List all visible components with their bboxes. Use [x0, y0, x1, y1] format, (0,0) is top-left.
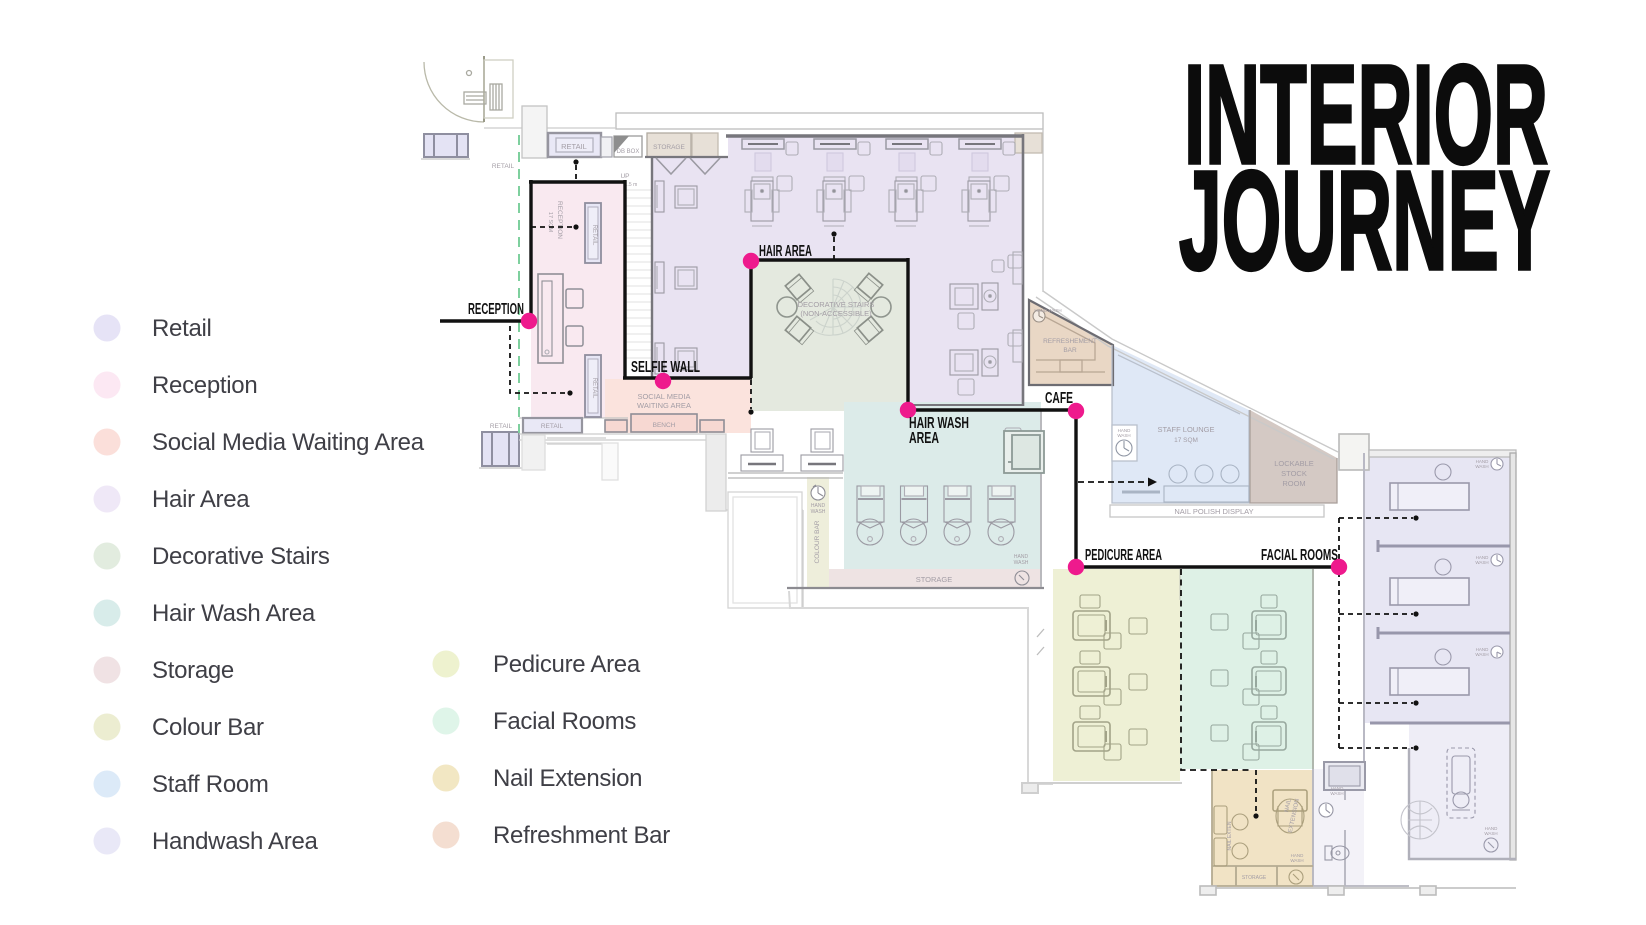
svg-text:Pedicure Area: Pedicure Area: [493, 651, 641, 678]
svg-text:RETAIL: RETAIL: [561, 142, 587, 151]
svg-text:Refreshment Bar: Refreshment Bar: [493, 822, 670, 849]
svg-text:LOCKABLE: LOCKABLE: [1274, 459, 1314, 468]
svg-text:RETAIL: RETAIL: [541, 423, 564, 430]
svg-text:Hair Wash Area: Hair Wash Area: [152, 600, 316, 627]
svg-text:Hair Area: Hair Area: [152, 486, 250, 513]
svg-text:WASH: WASH: [1475, 652, 1488, 657]
svg-text:Reception: Reception: [152, 372, 257, 399]
svg-text:WASH: WASH: [1475, 464, 1488, 469]
svg-text:WASH: WASH: [811, 509, 826, 515]
svg-text:WASH: WASH: [1330, 791, 1343, 796]
svg-text:Retail: Retail: [152, 315, 212, 342]
svg-text:Facial Rooms: Facial Rooms: [493, 708, 636, 735]
svg-text:WAITING AREA: WAITING AREA: [637, 401, 691, 410]
svg-text:STORAGE: STORAGE: [653, 144, 685, 151]
svg-text:Staff Room: Staff Room: [152, 771, 269, 798]
svg-text:STORAGE: STORAGE: [916, 575, 953, 584]
svg-text:Nail Extension: Nail Extension: [493, 765, 642, 792]
svg-text:Colour Bar: Colour Bar: [152, 714, 264, 741]
svg-text:STAFF LOUNGE: STAFF LOUNGE: [1158, 425, 1215, 434]
svg-text:AREA: AREA: [909, 430, 939, 447]
svg-text:UP: UP: [620, 173, 629, 180]
svg-text:STORAGE: STORAGE: [1242, 875, 1267, 881]
svg-text:CAFE: CAFE: [1045, 390, 1073, 407]
svg-text:RETAIL: RETAIL: [492, 163, 515, 170]
svg-text:BAR: BAR: [1063, 347, 1077, 354]
svg-text:Decorative Stairs: Decorative Stairs: [152, 543, 330, 570]
svg-text:WASH: WASH: [1475, 560, 1488, 565]
svg-text:WASH: WASH: [1484, 831, 1497, 836]
svg-text:WASH: WASH: [1117, 433, 1130, 438]
svg-text:WASH: WASH: [1290, 858, 1303, 863]
svg-text:ROOM: ROOM: [1282, 479, 1305, 488]
svg-text:SELFIE WALL: SELFIE WALL: [631, 359, 700, 376]
svg-text:Handwash Area: Handwash Area: [152, 828, 318, 855]
svg-text:17 SQM: 17 SQM: [547, 212, 553, 233]
svg-text:DECORATIVE STAIRS: DECORATIVE STAIRS: [798, 300, 875, 309]
svg-text:17 SQM: 17 SQM: [1174, 437, 1198, 444]
svg-text:Social Media Waiting Area: Social Media Waiting Area: [152, 429, 425, 456]
svg-text:PEDICURE AREA: PEDICURE AREA: [1085, 547, 1162, 564]
svg-text:STOCK: STOCK: [1281, 469, 1307, 478]
svg-text:JOURNEY: JOURNEY: [1179, 141, 1550, 299]
svg-text:Storage: Storage: [152, 657, 234, 684]
svg-text:FACIAL ROOMS: FACIAL ROOMS: [1261, 547, 1338, 564]
svg-text:BENCH: BENCH: [653, 422, 676, 429]
svg-text:HAND WASH: HAND WASH: [1034, 308, 1061, 313]
svg-text:WASH: WASH: [1014, 560, 1029, 566]
svg-text:RETAIL: RETAIL: [490, 423, 513, 430]
svg-text:NAIL POLISH DISPLAY: NAIL POLISH DISPLAY: [1174, 507, 1253, 516]
svg-text:COLOUR BAR: COLOUR BAR: [814, 520, 821, 563]
svg-text:RETAIL: RETAIL: [591, 378, 597, 399]
svg-text:RECEPTION: RECEPTION: [556, 201, 563, 239]
svg-text:REFRESHEMENT: REFRESHEMENT: [1043, 338, 1097, 345]
svg-text:DB BOX: DB BOX: [617, 149, 640, 155]
svg-text:SOCIAL MEDIA: SOCIAL MEDIA: [637, 392, 690, 401]
svg-text:(NON-ACCESSIBLE): (NON-ACCESSIBLE): [800, 309, 872, 318]
svg-text:NAIL EXTEN: NAIL EXTEN: [1227, 821, 1233, 850]
svg-text:RECEPTION: RECEPTION: [468, 301, 524, 318]
svg-text:RETAIL: RETAIL: [591, 225, 597, 246]
svg-text:HAIR AREA: HAIR AREA: [759, 243, 812, 260]
